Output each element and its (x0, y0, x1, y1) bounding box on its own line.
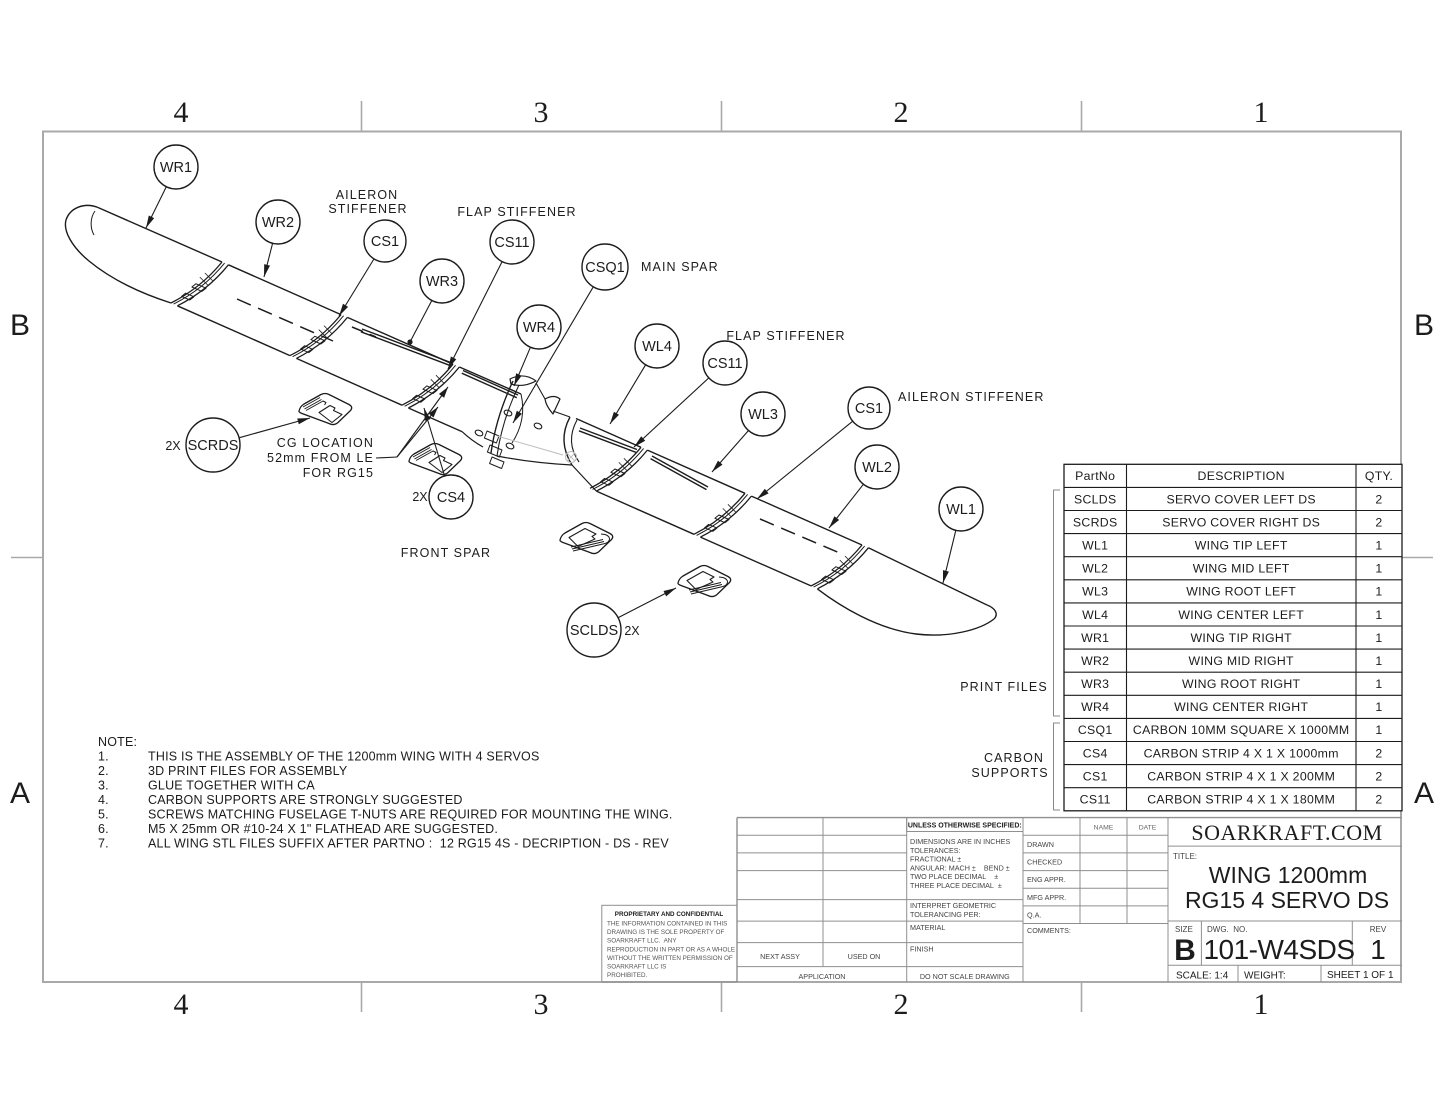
svg-text:SERVO COVER RIGHT DS: SERVO COVER RIGHT DS (1162, 515, 1320, 529)
svg-text:SHEET 1 OF 1: SHEET 1 OF 1 (1327, 970, 1394, 981)
svg-text:SCREWS MATCHING FUSELAGE T-NUT: SCREWS MATCHING FUSELAGE T-NUTS ARE REQU… (148, 808, 673, 822)
svg-text:GLUE TOGETHER WITH CA: GLUE TOGETHER WITH CA (148, 779, 315, 793)
svg-text:A: A (1414, 777, 1434, 810)
svg-text:DIMENSIONS ARE IN INCHES: DIMENSIONS ARE IN INCHES (910, 837, 1010, 846)
svg-text:3: 3 (534, 96, 549, 129)
svg-text:SCRDS: SCRDS (188, 438, 239, 454)
svg-text:1: 1 (1375, 608, 1382, 622)
svg-text:WR3: WR3 (1081, 677, 1109, 691)
svg-text:WR4: WR4 (1081, 700, 1109, 714)
svg-text:2: 2 (894, 96, 909, 129)
svg-text:RG15 4 SERVO DS: RG15 4 SERVO DS (1185, 887, 1389, 913)
svg-text:WING ROOT LEFT: WING ROOT LEFT (1186, 585, 1296, 599)
svg-text:USED ON: USED ON (848, 952, 881, 961)
svg-text:Q.A.: Q.A. (1027, 910, 1041, 919)
svg-text:SCLDS: SCLDS (570, 623, 618, 639)
svg-text:2X: 2X (412, 490, 428, 504)
svg-text:THIS IS THE ASSEMBLY OF THE 12: THIS IS THE ASSEMBLY OF THE 1200mm WING … (148, 750, 539, 764)
svg-text:CARBON STRIP 4 X 1 X 200MM: CARBON STRIP 4 X 1 X 200MM (1147, 769, 1335, 783)
svg-text:ANGULAR: MACH ± BEND ±: ANGULAR: MACH ± BEND ± (910, 863, 1010, 872)
svg-text:FLAP STIFFENER: FLAP STIFFENER (726, 329, 845, 343)
svg-text:1: 1 (1375, 654, 1382, 668)
svg-text:1: 1 (1375, 677, 1382, 691)
svg-text:WING MID RIGHT: WING MID RIGHT (1189, 654, 1294, 668)
svg-text:B: B (1414, 309, 1434, 342)
svg-text:AILERON STIFFENER: AILERON STIFFENER (898, 390, 1045, 404)
svg-text:CSQ1: CSQ1 (585, 260, 625, 276)
svg-text:M5 X 25mm OR #10-24 X 1" FLATH: M5 X 25mm OR #10-24 X 1" FLATHEAD ARE SU… (148, 822, 498, 836)
svg-text:THE INFORMATION CONTAINED IN T: THE INFORMATION CONTAINED IN THIS (607, 921, 727, 928)
svg-text:ALL WING STL FILES SUFFIX AFTE: ALL WING STL FILES SUFFIX AFTER PARTNO :… (148, 837, 669, 851)
svg-text:WR2: WR2 (262, 215, 294, 231)
svg-text:NOTE:: NOTE: (98, 735, 137, 749)
svg-text:TWO PLACE DECIMAL ±: TWO PLACE DECIMAL ± (910, 872, 998, 881)
svg-text:PROPRIETARY AND CONFIDENTIAL: PROPRIETARY AND CONFIDENTIAL (615, 911, 724, 918)
svg-text:52mm FROM LE: 52mm FROM LE (267, 451, 374, 465)
svg-text:WL3: WL3 (1082, 585, 1108, 599)
svg-text:WR1: WR1 (160, 160, 192, 176)
svg-text:WING CENTER LEFT: WING CENTER LEFT (1178, 608, 1304, 622)
svg-text:3.: 3. (98, 779, 109, 793)
svg-text:1: 1 (1375, 723, 1382, 737)
svg-text:A: A (10, 777, 30, 810)
svg-text:CS4: CS4 (437, 490, 465, 506)
svg-text:CARBON STRIP 4 X 1 X 1000mm: CARBON STRIP 4 X 1 X 1000mm (1144, 746, 1339, 760)
svg-text:1: 1 (1375, 700, 1382, 714)
svg-text:2: 2 (894, 988, 909, 1021)
svg-text:CARBON SUPPORTS ARE STRONGLY S: CARBON SUPPORTS ARE STRONGLY SUGGESTED (148, 793, 463, 807)
svg-text:TOLERANCES:: TOLERANCES: (910, 846, 961, 855)
svg-text:1: 1 (1254, 988, 1269, 1021)
svg-text:INTERPRET GEOMETRIC: INTERPRET GEOMETRIC (910, 901, 996, 910)
svg-text:2X: 2X (165, 439, 181, 453)
svg-text:WING 1200mm: WING 1200mm (1209, 862, 1367, 888)
svg-text:CS1: CS1 (855, 401, 883, 417)
svg-text:FRONT SPAR: FRONT SPAR (401, 546, 491, 560)
svg-text:WR4: WR4 (523, 320, 555, 336)
svg-text:CG LOCATION: CG LOCATION (277, 436, 374, 450)
svg-text:STIFFENER: STIFFENER (328, 202, 407, 216)
svg-text:3D PRINT FILES FOR ASSEMBLY: 3D PRINT FILES FOR ASSEMBLY (148, 764, 348, 778)
svg-text:1: 1 (1375, 538, 1382, 552)
svg-text:CSQ1: CSQ1 (1078, 723, 1113, 737)
svg-text:REV: REV (1370, 925, 1387, 934)
svg-text:SOARKRAFT.COM: SOARKRAFT.COM (1191, 820, 1382, 845)
svg-text:SERVO COVER LEFT DS: SERVO COVER LEFT DS (1166, 492, 1315, 506)
svg-text:CS4: CS4 (1083, 746, 1108, 760)
svg-text:PartNo: PartNo (1075, 469, 1115, 483)
svg-text:UNLESS OTHERWISE SPECIFIED:: UNLESS OTHERWISE SPECIFIED: (908, 823, 1022, 830)
svg-text:1: 1 (1254, 96, 1269, 129)
svg-text:2X: 2X (624, 624, 640, 638)
svg-text:DESCRIPTION: DESCRIPTION (1198, 469, 1285, 483)
svg-text:CS11: CS11 (494, 235, 529, 251)
svg-text:1: 1 (1370, 934, 1386, 965)
svg-text:WL4: WL4 (642, 339, 672, 355)
svg-text:WR2: WR2 (1081, 654, 1109, 668)
svg-text:CS11: CS11 (1080, 793, 1111, 807)
svg-text:CARBON: CARBON (984, 751, 1044, 765)
svg-text:WEIGHT:: WEIGHT: (1244, 971, 1286, 982)
svg-text:WL4: WL4 (1082, 608, 1108, 622)
svg-text:CS1: CS1 (371, 234, 399, 250)
svg-text:PROHIBITED.: PROHIBITED. (607, 972, 647, 979)
svg-text:5.: 5. (98, 808, 109, 822)
svg-text:WING TIP LEFT: WING TIP LEFT (1195, 538, 1288, 552)
svg-text:NAME: NAME (1094, 825, 1114, 832)
svg-text:DWG. NO.: DWG. NO. (1207, 925, 1247, 934)
svg-text:7.: 7. (98, 837, 109, 851)
svg-text:DO NOT SCALE DRAWING: DO NOT SCALE DRAWING (920, 972, 1010, 981)
svg-text:FINISH: FINISH (910, 945, 934, 954)
svg-text:SCLDS: SCLDS (1074, 492, 1117, 506)
svg-text:WL2: WL2 (862, 460, 892, 476)
svg-text:THREE PLACE DECIMAL ±: THREE PLACE DECIMAL ± (910, 881, 1002, 890)
svg-text:FLAP STIFFENER: FLAP STIFFENER (457, 205, 576, 219)
svg-text:MAIN SPAR: MAIN SPAR (641, 260, 719, 274)
svg-text:COMMENTS:: COMMENTS: (1027, 926, 1071, 935)
svg-text:FOR RG15: FOR RG15 (303, 466, 374, 480)
svg-text:NEXT ASSY: NEXT ASSY (760, 952, 800, 961)
svg-text:MFG APPR.: MFG APPR. (1027, 893, 1066, 902)
svg-text:DATE: DATE (1139, 825, 1157, 832)
svg-text:WING CENTER RIGHT: WING CENTER RIGHT (1174, 700, 1308, 714)
svg-text:FRACTIONAL ±: FRACTIONAL ± (910, 855, 961, 864)
svg-text:1: 1 (1375, 585, 1382, 599)
svg-text:101-W4SDS: 101-W4SDS (1203, 934, 1354, 965)
svg-text:2: 2 (1375, 746, 1382, 760)
svg-text:B: B (10, 309, 30, 342)
svg-text:4.: 4. (98, 793, 109, 807)
svg-text:WING TIP RIGHT: WING TIP RIGHT (1190, 631, 1292, 645)
svg-text:TOLERANCING PER:: TOLERANCING PER: (910, 910, 981, 919)
svg-text:CARBON STRIP 4 X 1 X 180MM: CARBON STRIP 4 X 1 X 180MM (1147, 793, 1335, 807)
svg-text:4: 4 (174, 988, 189, 1021)
svg-text:2: 2 (1375, 515, 1382, 529)
svg-text:PRINT FILES: PRINT FILES (960, 680, 1048, 694)
svg-text:B: B (1174, 934, 1196, 967)
svg-text:3: 3 (534, 988, 549, 1021)
svg-text:WR1: WR1 (1081, 631, 1109, 645)
svg-text:CS11: CS11 (707, 356, 742, 372)
svg-text:1.: 1. (98, 750, 109, 764)
svg-text:4: 4 (174, 96, 189, 129)
svg-text:AILERON: AILERON (336, 188, 399, 202)
svg-text:1: 1 (1375, 562, 1382, 576)
svg-text:MATERIAL: MATERIAL (910, 923, 945, 932)
svg-text:WING MID LEFT: WING MID LEFT (1193, 562, 1290, 576)
svg-text:WL3: WL3 (748, 407, 778, 423)
svg-text:QTY.: QTY. (1365, 469, 1393, 483)
svg-text:6.: 6. (98, 822, 109, 836)
svg-text:WITHOUT THE WRITTEN PERMISSION: WITHOUT THE WRITTEN PERMISSION OF (607, 955, 733, 962)
svg-text:DRAWN: DRAWN (1027, 840, 1054, 849)
svg-text:2: 2 (1375, 492, 1382, 506)
svg-text:WL2: WL2 (1082, 562, 1108, 576)
svg-text:2: 2 (1375, 769, 1382, 783)
svg-text:2.: 2. (98, 764, 109, 778)
svg-text:SCRDS: SCRDS (1073, 515, 1118, 529)
svg-text:SUPPORTS: SUPPORTS (971, 766, 1048, 780)
svg-text:SOARKRAFT LLC. ANY: SOARKRAFT LLC. ANY (607, 938, 677, 945)
svg-text:2: 2 (1375, 793, 1382, 807)
svg-text:WL1: WL1 (1082, 538, 1108, 552)
svg-text:SCALE: 1:4: SCALE: 1:4 (1176, 971, 1229, 982)
svg-text:CS1: CS1 (1083, 769, 1108, 783)
svg-text:DRAWING IS THE SOLE PROPERTY O: DRAWING IS THE SOLE PROPERTY OF (607, 929, 724, 936)
svg-text:TITLE:: TITLE: (1173, 852, 1197, 861)
svg-text:WR3: WR3 (426, 274, 458, 290)
svg-text:WL1: WL1 (946, 502, 976, 518)
svg-text:1: 1 (1375, 631, 1382, 645)
svg-text:CARBON 10MM SQUARE X 1000MM: CARBON 10MM SQUARE X 1000MM (1133, 723, 1350, 737)
svg-text:SOARKRAFT LLC IS: SOARKRAFT LLC IS (607, 964, 666, 971)
svg-text:REPRODUCTION IN PART OR AS A W: REPRODUCTION IN PART OR AS A WHOLE (607, 946, 735, 953)
svg-text:SIZE: SIZE (1175, 925, 1193, 934)
svg-text:WING ROOT RIGHT: WING ROOT RIGHT (1182, 677, 1301, 691)
svg-text:APPLICATION: APPLICATION (799, 972, 846, 981)
svg-text:CHECKED: CHECKED (1027, 858, 1062, 867)
svg-text:ENG APPR.: ENG APPR. (1027, 875, 1066, 884)
